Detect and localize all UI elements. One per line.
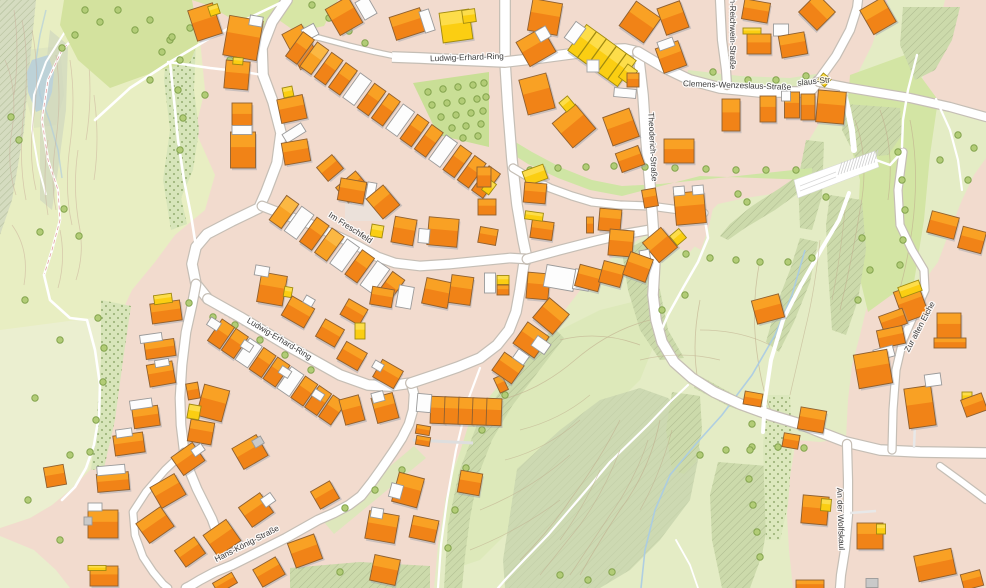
svg-text:h-Reichwein-Straße: h-Reichwein-Straße (728, 0, 737, 70)
